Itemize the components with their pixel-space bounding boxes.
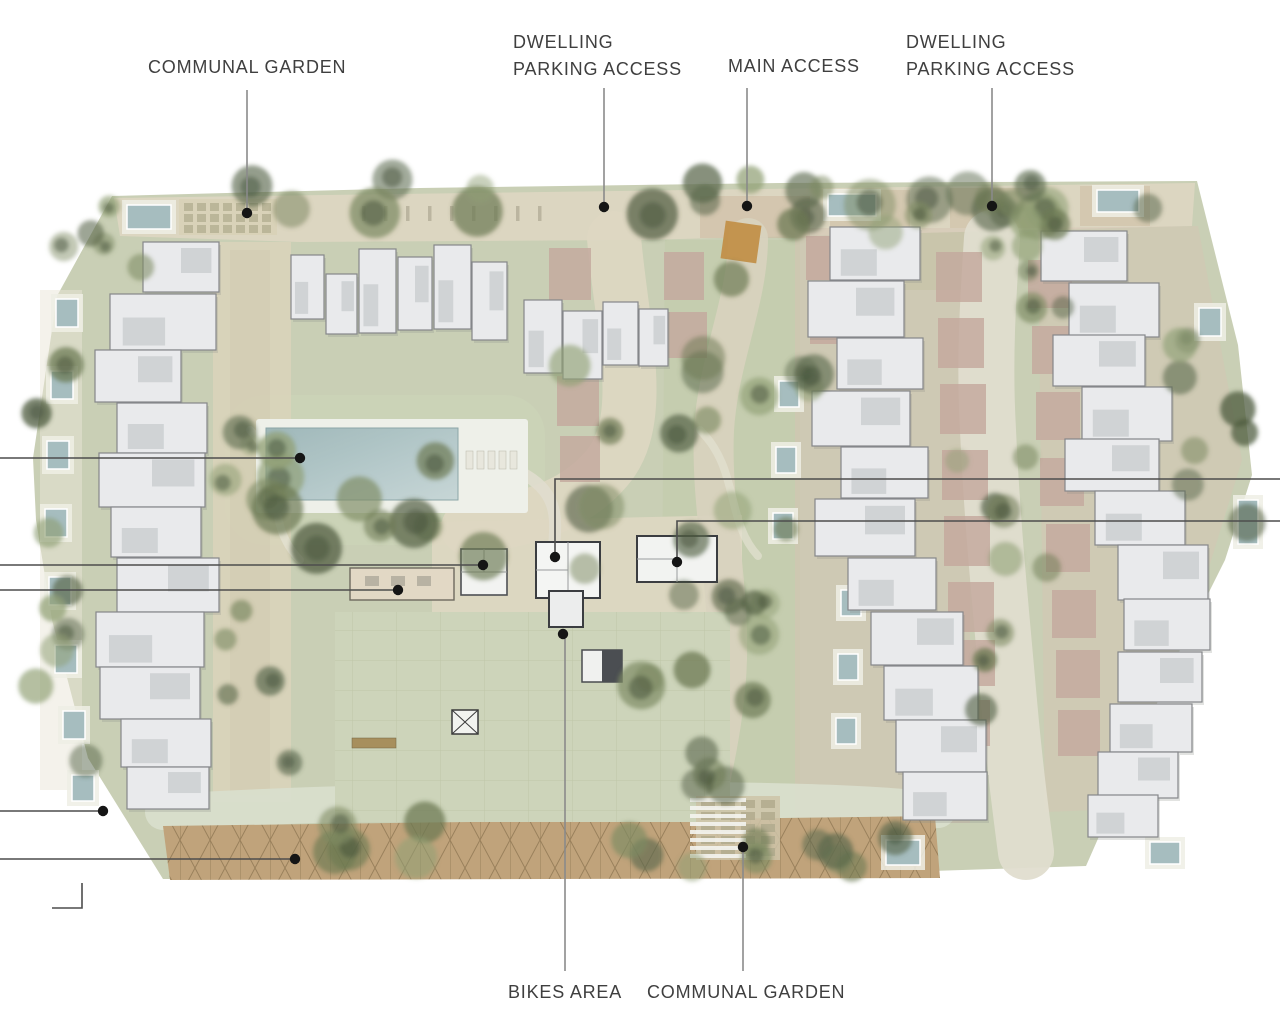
tree-core [857,190,883,216]
tree-core [667,425,686,444]
tree-core [215,475,231,491]
tree [681,336,725,380]
tree [1181,437,1208,464]
tree-core [266,673,281,688]
leader-left-to-building-a-dot [478,560,488,570]
tree [273,191,310,228]
planter [223,225,232,233]
tree-core [382,167,402,187]
tree-core [718,587,736,605]
tree [18,668,53,703]
roof-step [865,506,905,534]
planter [761,800,775,808]
main-access-gate [721,221,762,264]
label-dwelling-parking-access-west: DWELLING PARKING ACCESS [513,29,682,83]
plunge-pool [63,711,85,739]
tree [694,407,721,434]
driveway [1052,590,1096,638]
roof-step [1112,445,1150,471]
roof-step [128,424,164,449]
tree-core [680,530,698,548]
tree [810,176,834,200]
tree [466,175,494,203]
plunge-pool [1097,190,1139,212]
driveway [549,248,591,300]
tree-core [995,503,1012,520]
tree-core [29,404,44,419]
tree [1228,504,1265,541]
roof-step [607,328,621,360]
leader-left-corner-stub-line [52,883,82,908]
leader-main-access-dot [742,201,752,211]
plunge-pool [47,441,69,469]
tree [678,853,707,882]
driveway [664,252,704,300]
tree [217,684,238,705]
leader-left-to-pool-dot [295,453,305,463]
parking-hatch [690,838,746,842]
roof-step [861,398,900,426]
parking-hatch [690,830,746,834]
leader-right-to-building-b-dot [672,557,682,567]
driveway [936,252,982,302]
tree-core [751,625,771,645]
tree [230,600,252,622]
tree-core [240,177,260,197]
label-communal-garden-top: COMMUNAL GARDEN [148,54,346,81]
roof-step [295,282,308,314]
plunge-pool [56,299,78,327]
roof-step [109,635,152,663]
tree [1052,296,1074,318]
sun-lounger [488,451,495,469]
roof-step [168,772,201,793]
tree-core [801,366,821,386]
label-communal-garden-bottom: COMMUNAL GARDEN [647,979,845,1006]
tree [215,628,237,650]
roof-step [1138,758,1170,781]
planter [262,203,271,211]
tree-core [100,241,111,252]
tree [404,802,445,843]
tree [570,553,601,584]
tree-core [603,424,616,437]
label-text: DWELLING [906,29,1075,56]
roof-step [841,249,877,276]
leader-bikes-area-dot [558,629,568,639]
tree [1163,361,1197,395]
plunge-pool [1150,842,1180,864]
parking-hatch [690,846,746,850]
label-text: COMMUNAL GARDEN [148,54,346,81]
planter [210,214,219,222]
roof-step [1084,237,1118,262]
roof-step [168,564,209,591]
tree-core [1026,266,1037,277]
roof-step [856,288,894,316]
tree-core [746,688,764,706]
driveway [940,384,986,434]
tree-core [995,625,1009,639]
planter [210,225,219,233]
tree-core [640,202,666,228]
tree [965,694,997,726]
driveway [944,516,990,566]
tree [77,220,104,247]
roof-step [1106,514,1142,541]
roof-step [917,618,954,645]
roof-step [438,280,453,322]
tree [1013,444,1038,469]
sun-lounger [466,451,473,469]
planter [184,225,193,233]
planter [262,225,271,233]
tree [945,449,969,473]
tree [868,215,902,249]
tree [669,580,699,610]
site-plan-page: COMMUNAL GARDEN DWELLING PARKING ACCESS … [0,0,1280,1024]
label-bikes-area: BIKES AREA [508,979,622,1006]
driveway [938,318,984,368]
tree-core [282,756,295,769]
tree [1134,194,1163,223]
tree-core [304,536,329,561]
tree [69,744,102,777]
tree [611,822,647,858]
plunge-pool [127,205,171,229]
tree [714,492,752,530]
leader-dwelling-parking-access-west-dot [599,202,609,212]
roof-step [941,726,977,752]
tree-core [56,356,74,374]
tree [674,652,711,689]
tree [34,518,64,548]
leader-left-to-road-dot [98,806,108,816]
tree [459,532,507,580]
label-text: PARKING ACCESS [513,56,682,83]
roof-step [138,356,172,382]
planter [184,214,193,222]
planter [197,225,206,233]
tree [988,542,1022,576]
tree [802,829,833,860]
label-main-access: MAIN ACCESS [728,53,860,80]
tree-core [989,240,1001,252]
plunge-pool [1199,308,1221,336]
roof-step [150,673,190,699]
label-dwelling-parking-access-east: DWELLING PARKING ACCESS [906,29,1075,83]
planter [262,214,271,222]
tree-core [1024,175,1040,191]
tree-core [977,655,989,667]
tree [742,590,767,615]
roof-step [847,359,881,385]
parking-hatch [690,822,746,826]
tree [1033,553,1061,581]
kiosk [452,710,478,734]
driveway [560,436,600,482]
tree-core [234,421,251,438]
tree-core [54,238,69,253]
plunge-pool [776,447,796,473]
roof-step [1096,813,1124,834]
roof-step [123,318,165,346]
roof-step [363,284,378,326]
tree [777,208,809,240]
tree [395,836,437,878]
plunge-pool [836,718,856,744]
driveway [1058,710,1100,756]
label-text: BIKES AREA [508,979,622,1006]
leader-dwelling-parking-access-east-dot [987,201,997,211]
planter [223,203,232,211]
roof-step [654,316,666,345]
tree [549,345,591,387]
roof-step [152,459,194,486]
site-plan-map [0,0,1280,1024]
planter [197,214,206,222]
tree-core [425,454,444,473]
tree [579,484,624,529]
roof-step [1120,724,1153,748]
roof-step [181,248,211,273]
planter [210,203,219,211]
plunge-pool [838,654,858,680]
planter [184,203,193,211]
tree-core [748,848,763,863]
roof-step [132,739,168,763]
leader-communal-garden-bottom-dot [738,842,748,852]
tree [127,254,154,281]
tree [39,595,66,622]
roof-step [913,792,947,816]
planter [761,812,775,820]
planter [223,214,232,222]
tree-core [629,676,653,700]
driveway [1036,392,1080,440]
roof-step [1160,658,1194,683]
label-text: DWELLING [513,29,682,56]
sun-lounger [510,451,517,469]
parking-hatch [690,814,746,818]
roof-step [1099,341,1136,367]
tree-core [913,208,926,221]
roof-step [859,580,894,606]
roof-step [490,271,504,310]
tree-core [887,827,904,844]
tree-core [103,202,114,213]
roof-step [583,319,599,353]
tree-core [267,439,286,458]
tree-core [403,510,428,535]
communal-garden-top-planters [179,199,277,235]
sun-lounger [477,451,484,469]
leader-left-to-building-b-dot [393,585,403,595]
roof-step [1093,410,1129,437]
tree [1172,469,1204,501]
roof-step [415,266,429,303]
leader-communal-garden-top-dot [242,208,252,218]
parking-hatch [690,806,746,810]
tree [736,166,764,194]
driveway [1056,650,1100,698]
planter [197,203,206,211]
tree [681,769,713,801]
tree-core [263,495,289,521]
roof-step [122,528,158,553]
planter [236,225,245,233]
label-text: COMMUNAL GARDEN [647,979,845,1006]
tree [714,261,749,296]
tree-core [331,814,350,833]
tree-core [374,519,390,535]
planter [249,225,258,233]
tree [1163,328,1197,362]
leader-right-to-building-a-dot [550,552,560,562]
roof-step [1163,552,1199,580]
plunge-pool [72,775,94,801]
tree-core [1025,299,1040,314]
roof-step [1134,620,1168,646]
tree [685,736,718,769]
roof-step [851,468,886,494]
sun-lounger [499,451,506,469]
roof-step [1080,306,1116,333]
roof-step [342,281,354,311]
tree-core [361,200,386,225]
leader-left-to-pergola-dot [290,854,300,864]
tree [40,634,74,668]
label-text: MAIN ACCESS [728,53,860,80]
tree [690,185,720,215]
roof-step [529,331,544,368]
tree [1220,391,1255,426]
tree-core [1047,216,1063,232]
label-text: PARKING ACCESS [906,56,1075,83]
roof-step [895,689,933,716]
tree-core [750,385,769,404]
